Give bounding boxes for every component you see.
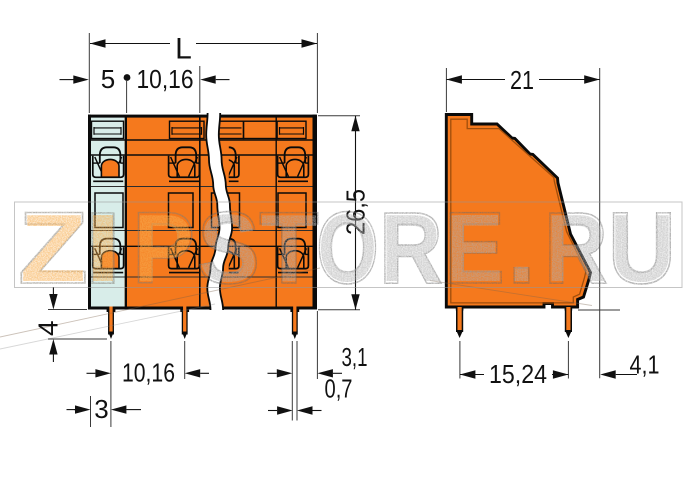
- svg-text:E: E: [446, 195, 503, 302]
- svg-text:R: R: [381, 195, 441, 302]
- svg-text:4,1: 4,1: [630, 350, 660, 380]
- svg-text:15,24: 15,24: [489, 359, 547, 389]
- svg-text:P: P: [134, 195, 193, 302]
- svg-text:Z: Z: [20, 195, 86, 302]
- svg-text:S: S: [199, 195, 258, 302]
- svg-text:3: 3: [94, 394, 108, 424]
- svg-text:4: 4: [33, 320, 64, 336]
- svg-text:0,7: 0,7: [325, 374, 353, 404]
- svg-text:U: U: [610, 195, 674, 302]
- svg-text:10,16: 10,16: [122, 358, 175, 388]
- svg-text:R: R: [546, 195, 606, 302]
- svg-text:O: O: [318, 195, 377, 302]
- svg-text:3,1: 3,1: [342, 342, 368, 372]
- svg-text:5: 5: [101, 64, 115, 94]
- svg-text:10,16: 10,16: [137, 64, 194, 94]
- svg-text:L: L: [175, 33, 192, 66]
- svg-text:21: 21: [510, 65, 534, 95]
- svg-text:.: .: [508, 195, 535, 302]
- svg-text:T: T: [261, 195, 317, 302]
- svg-text:I: I: [84, 195, 122, 302]
